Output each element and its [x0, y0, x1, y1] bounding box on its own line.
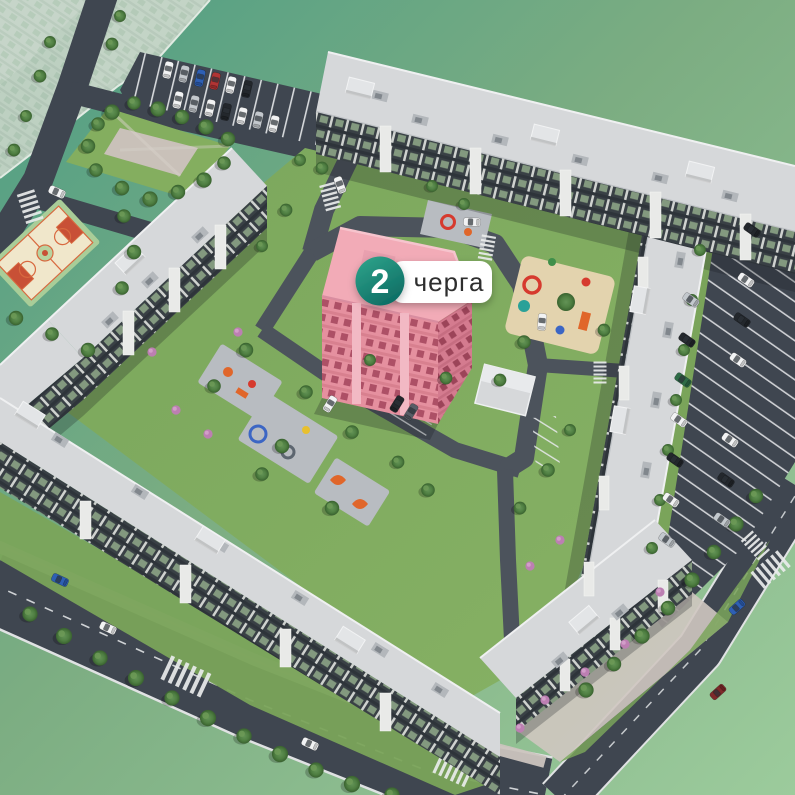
- stairwell-pier: [380, 126, 391, 172]
- stairwell-pier: [560, 170, 571, 216]
- stairwell-pier: [740, 214, 751, 260]
- masterplan-canvas: черга 2: [0, 0, 795, 795]
- stairwell-pier: [584, 562, 594, 596]
- stairwell-pier: [280, 629, 291, 667]
- stairwell-pier: [180, 565, 191, 603]
- stairwell-pier: [650, 192, 661, 238]
- stairwell-pier: [80, 501, 91, 539]
- shrub: [555, 535, 564, 544]
- stairwell-pier: [599, 476, 609, 510]
- car: [463, 218, 480, 227]
- car: [537, 313, 547, 331]
- shrub: [233, 327, 242, 336]
- phase-2-marker[interactable]: черга 2: [356, 257, 493, 306]
- shrub: [515, 723, 524, 732]
- shrub: [525, 561, 534, 570]
- phase-marker-number: 2: [371, 263, 390, 301]
- shrub: [171, 405, 180, 414]
- phase-marker-label: черга: [414, 267, 485, 297]
- stairwell-pier: [215, 225, 226, 269]
- shrub: [203, 429, 212, 438]
- shrub: [620, 639, 629, 648]
- stairwell-pier: [619, 366, 629, 400]
- stairwell-pier: [380, 693, 391, 731]
- shrub: [580, 667, 589, 676]
- stairwell-pier: [638, 257, 648, 291]
- stairwell-pier: [123, 311, 134, 355]
- shrub: [147, 347, 156, 356]
- stairwell-pier: [470, 148, 481, 194]
- shrub: [540, 695, 549, 704]
- stairwell-pier: [169, 268, 180, 312]
- shrub: [655, 587, 664, 596]
- stairwell-pier: [610, 618, 620, 650]
